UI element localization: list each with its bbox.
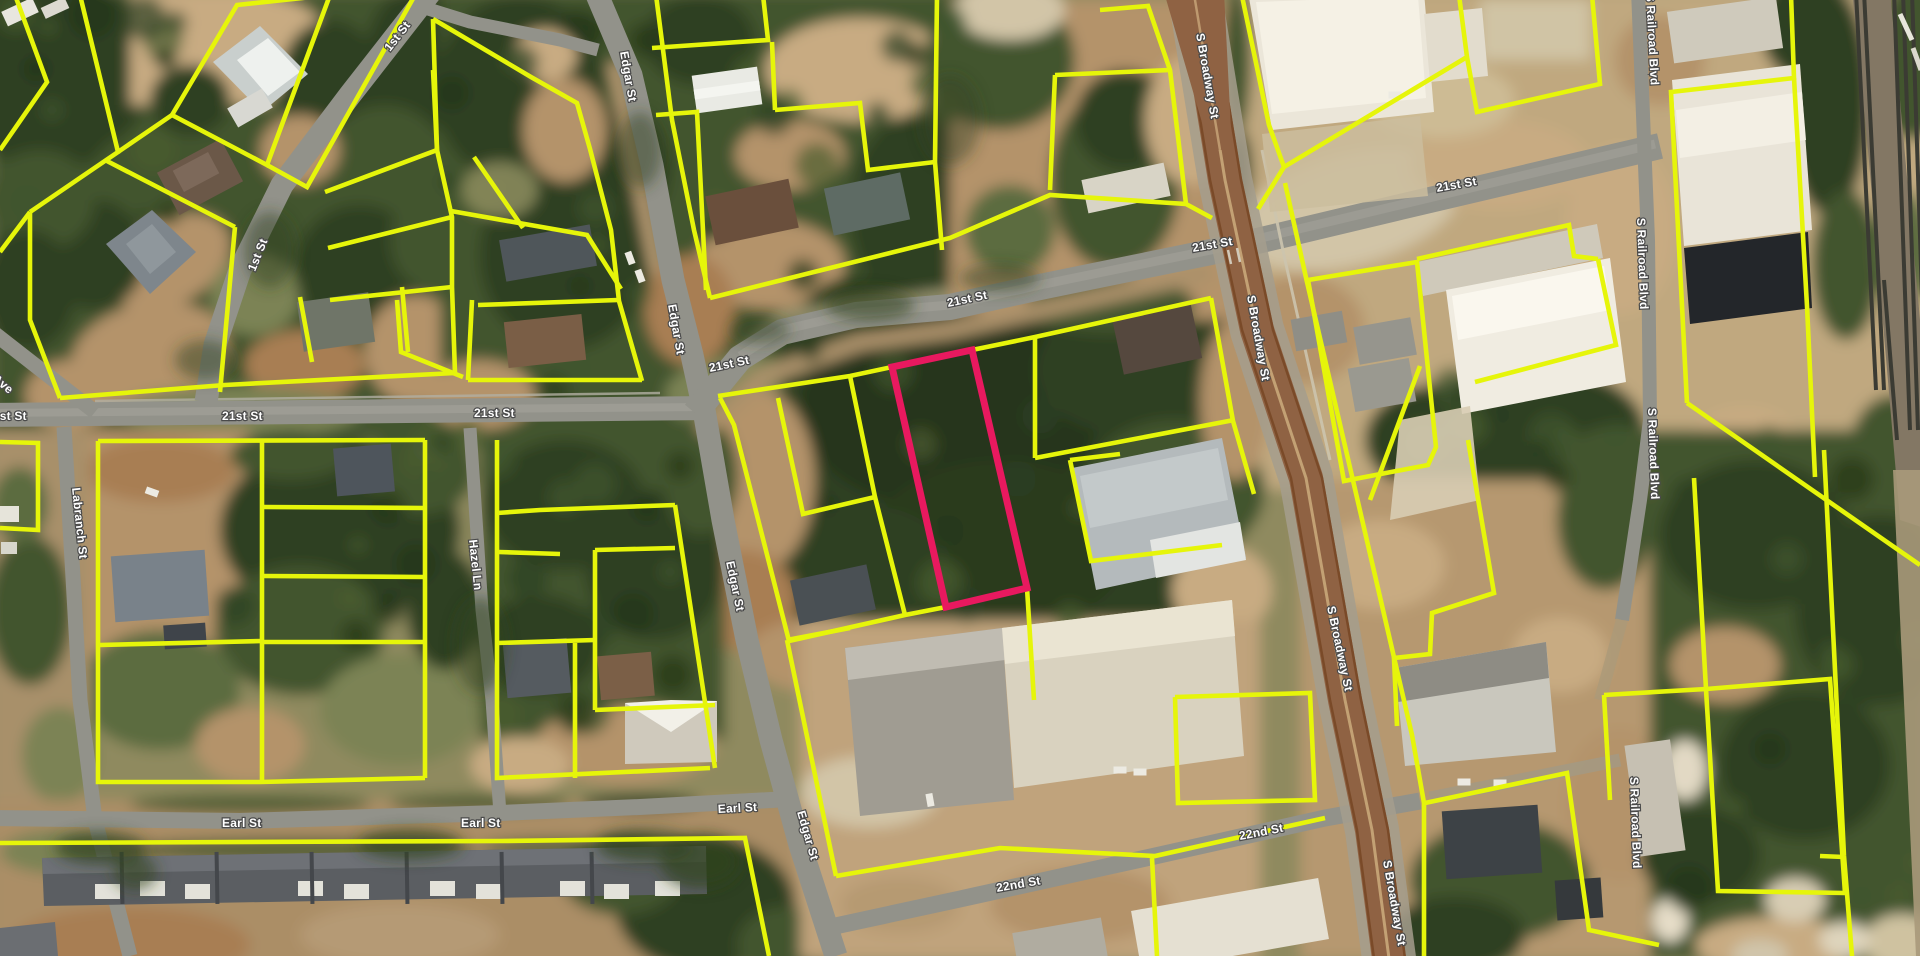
svg-text:Earl St: Earl St (461, 816, 500, 830)
svg-text:21st St: 21st St (0, 409, 27, 423)
svg-text:Earl St: Earl St (222, 816, 261, 830)
svg-text:21st St: 21st St (222, 409, 263, 423)
svg-text:Earl St: Earl St (717, 800, 757, 816)
svg-text:21st St: 21st St (474, 406, 515, 420)
